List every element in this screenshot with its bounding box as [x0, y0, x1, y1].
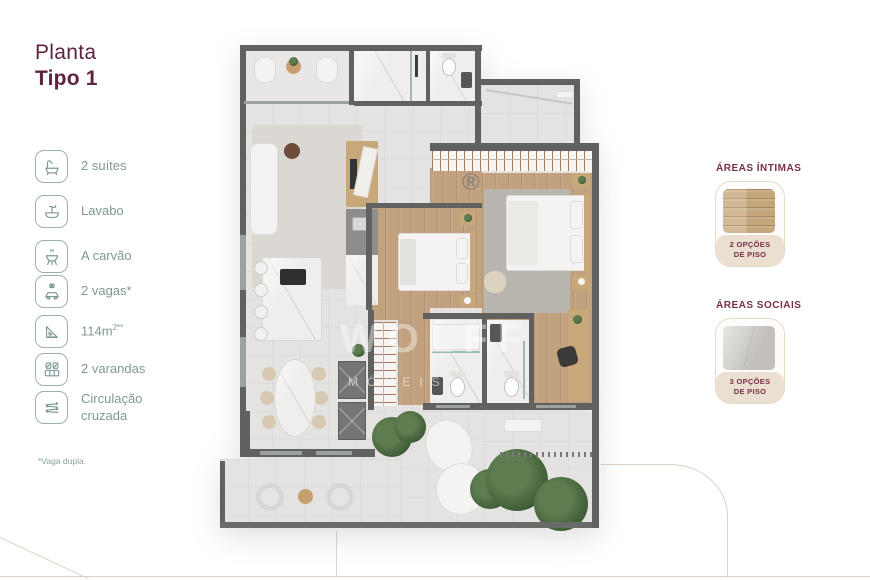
wall: [426, 47, 430, 103]
legend-item-varandas: 2 varandas: [35, 353, 145, 386]
wall: [366, 203, 372, 310]
desk-plant: [573, 315, 582, 324]
entry-bench: [556, 91, 574, 98]
dining-chair: [260, 391, 274, 405]
legend-label-lavabo: Lavabo: [81, 203, 124, 219]
footnote: *Vaga dupla.: [38, 456, 86, 466]
pillar: [240, 411, 250, 455]
decorative-diagonal-line: [0, 536, 89, 579]
terrace-sliding-door: [316, 451, 352, 455]
legend-item-suites: 2 suítes: [35, 150, 127, 183]
legend-label-circulacao: Circulação cruzada: [81, 391, 189, 424]
terrace-armchair: [326, 483, 354, 511]
balcony-plant: [289, 57, 298, 66]
toilet: [504, 377, 519, 397]
wall: [430, 143, 598, 151]
bed-suite2-pillow: [570, 235, 583, 263]
decorative-vertical-line: [336, 531, 337, 577]
tall-cabinet: [338, 402, 366, 440]
shower-fixture: [415, 55, 418, 77]
wood-floor-swatch: [723, 189, 775, 233]
terrace-sliding-door: [260, 451, 302, 455]
terrace-side-table: [298, 489, 313, 504]
wall: [475, 79, 580, 85]
flooring-caption-sociais: 3 OPÇÕES DE PISO: [716, 372, 784, 403]
wall: [354, 101, 482, 106]
bed-suite1-headboard: [470, 231, 476, 293]
bed-suite2-pillow: [570, 201, 583, 229]
window-glass: [240, 337, 246, 387]
wall: [592, 409, 599, 528]
bed-suite2-headboard: [584, 193, 591, 273]
registered-trademark-watermark: ®: [462, 169, 480, 197]
dining-chair: [314, 391, 328, 405]
living-sofa: [250, 143, 278, 235]
caption-line: 2 OPÇÕES: [716, 240, 784, 250]
dining-chair: [312, 367, 326, 381]
wall: [475, 45, 481, 149]
page-title-line2: Tipo 1: [35, 66, 98, 92]
flooring-card-sociais: 3 OPÇÕES DE PISO: [715, 318, 785, 404]
wall: [240, 45, 482, 51]
bedroom2-armchair: [484, 271, 506, 293]
wall: [592, 143, 599, 411]
sink-icon: [35, 195, 68, 228]
car-icon: [35, 275, 68, 308]
legend-label-area: 114m2**: [81, 323, 123, 340]
wall: [349, 45, 354, 105]
cooktop: [280, 269, 306, 285]
brochure-page: Planta Tipo 1 2 suítes Lavabo: [0, 0, 870, 580]
dining-chair: [262, 367, 276, 381]
balcony-chair: [254, 57, 276, 83]
legend-item-circulacao: Circulação cruzada: [35, 391, 189, 424]
wall: [220, 461, 225, 527]
caption-line: DE PISO: [716, 387, 784, 397]
dining-table: [274, 359, 316, 437]
page-title-line1: Planta: [35, 40, 98, 66]
terrace-sliding-door: [536, 405, 576, 408]
wall: [574, 79, 580, 145]
arrows-icon: [35, 391, 68, 424]
dining-chair: [312, 415, 326, 429]
terrace-sliding-door: [436, 405, 470, 408]
flooring-card-intimas: 2 OPÇÕES DE PISO: [715, 181, 785, 267]
washbasin: [461, 72, 472, 88]
grill-icon: [35, 240, 68, 273]
balcony-chair: [316, 57, 338, 83]
island-stool: [254, 283, 268, 297]
areas-intimas-heading: ÁREAS ÍNTIMAS: [716, 163, 801, 174]
island-stool: [254, 305, 268, 319]
flooring-caption-intimas: 2 OPÇÕES DE PISO: [716, 235, 784, 266]
bottom-rule-line: [0, 576, 870, 577]
bed-suite1-pillow: [456, 263, 468, 284]
areas-sociais-heading: ÁREAS SOCIAIS: [716, 300, 801, 311]
stone-floor-swatch: [723, 326, 775, 370]
legend-item-carvao: A carvão: [35, 240, 132, 273]
bed-suite1-pillow: [456, 238, 468, 259]
terrace-parapet: [220, 522, 599, 528]
shower-glass: [410, 51, 412, 101]
terrace-armchair: [256, 483, 284, 511]
caption-line: 3 OPÇÕES: [716, 377, 784, 387]
nightstand-plant: [578, 176, 586, 184]
balcony-sliding-door: [244, 101, 349, 104]
legend-item-lavabo: Lavabo: [35, 195, 124, 228]
bathtub-icon: [35, 150, 68, 183]
caption-line: DE PISO: [716, 250, 784, 260]
brand-watermark: WOLFF: [340, 317, 532, 362]
window-glass: [240, 235, 246, 290]
dining-chair: [262, 415, 276, 429]
terrace-bench: [504, 419, 542, 432]
bed-suite1-throw: [400, 239, 416, 285]
page-title: Planta Tipo 1: [35, 40, 98, 93]
nightstand-plant: [464, 214, 472, 222]
floor-plan: ® WOLFF MÓVEIS®: [218, 45, 602, 533]
kitchen-counter-marble: [346, 255, 378, 305]
legend-label-suites: 2 suítes: [81, 158, 127, 174]
side-table: [284, 143, 300, 159]
wall: [366, 203, 482, 208]
island-stool: [254, 261, 268, 275]
legend-label-carvao: A carvão: [81, 248, 132, 264]
balcony-icon: [35, 353, 68, 386]
legend-label-varandas: 2 varandas: [81, 361, 145, 377]
ruler-icon: [35, 315, 68, 348]
legend-item-vagas: 2 vagas*: [35, 275, 132, 308]
legend-item-area: 114m2**: [35, 315, 123, 348]
nightstand-vase: [578, 278, 585, 285]
bed-suite2-throw: [508, 201, 538, 265]
decorative-arc-line: [601, 464, 728, 578]
pergola-louvers: [500, 452, 592, 457]
toilet: [442, 58, 456, 76]
closet-hangers-top: [432, 151, 592, 171]
nightstand-vase: [464, 297, 471, 304]
kitchen-counter: [346, 209, 378, 255]
brand-watermark-sub: MÓVEIS®: [348, 375, 454, 389]
island-stool: [254, 327, 268, 341]
legend-label-vagas: 2 vagas*: [81, 283, 132, 299]
